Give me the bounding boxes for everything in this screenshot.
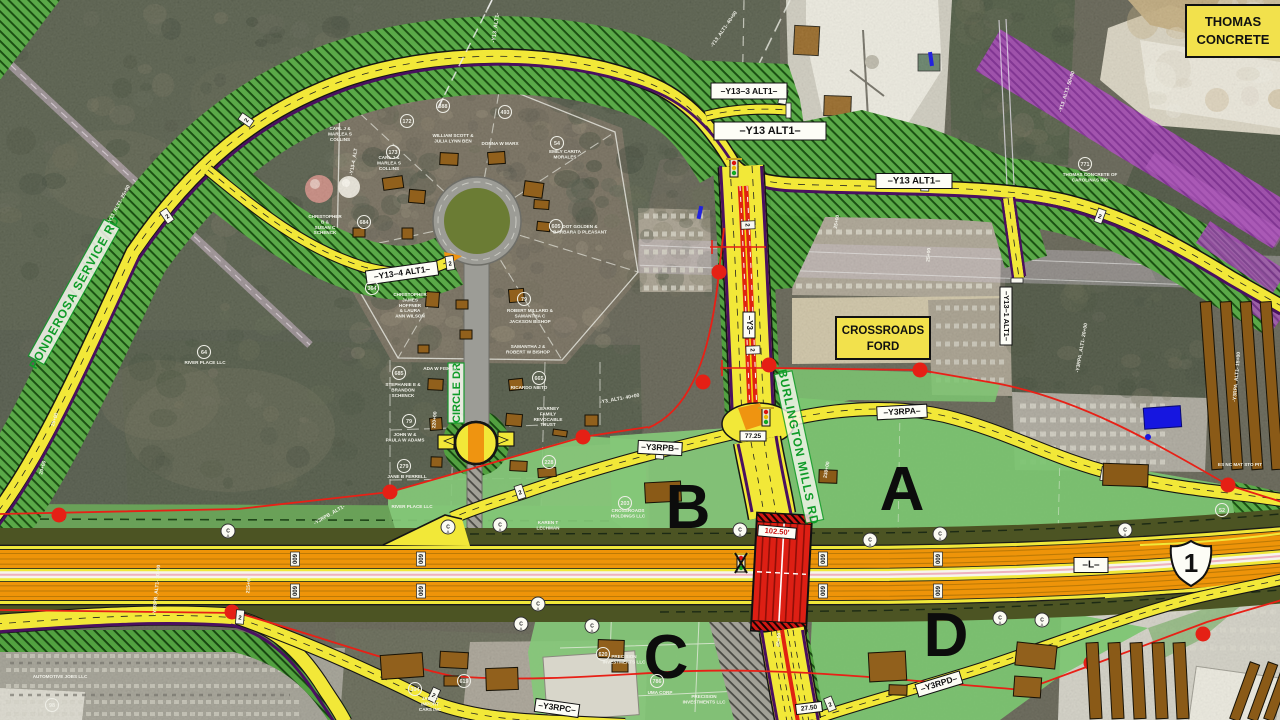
svg-text:TRUST: TRUST xyxy=(540,422,556,427)
svg-text:SAMANTHA C: SAMANTHA C xyxy=(515,313,546,318)
svg-text:STEPHANIE E &: STEPHANIE E & xyxy=(385,382,421,387)
svg-text:600: 600 xyxy=(819,554,825,565)
svg-text:IMPORT: IMPORT xyxy=(421,701,439,706)
svg-text:JAMBO: JAMBO xyxy=(422,696,439,701)
svg-text:RIVER PLACE LLC: RIVER PLACE LLC xyxy=(391,504,433,509)
svg-text:–Y3RPB–: –Y3RPB– xyxy=(641,441,680,453)
svg-text:CROSSROADS: CROSSROADS xyxy=(842,325,925,337)
svg-text:620: 620 xyxy=(599,652,608,658)
svg-text:FAMILY: FAMILY xyxy=(540,411,556,416)
svg-text:CHRISTOPHER: CHRISTOPHER xyxy=(308,214,342,219)
svg-text:JOHN W &: JOHN W & xyxy=(394,432,418,437)
svg-text:54: 54 xyxy=(554,141,560,147)
svg-text:B: B xyxy=(666,473,711,542)
svg-text:JAMES: JAMES xyxy=(402,297,418,302)
svg-text:ADA W FISHER: ADA W FISHER xyxy=(423,366,457,371)
svg-text:PRECISION: PRECISION xyxy=(611,654,637,659)
svg-text:77.25: 77.25 xyxy=(745,433,762,440)
svg-text:EMILY CARITA: EMILY CARITA xyxy=(549,149,582,154)
svg-text:A: A xyxy=(1124,532,1127,537)
svg-text:52: 52 xyxy=(1219,508,1225,514)
svg-text:MARLEA S: MARLEA S xyxy=(328,131,352,136)
svg-text:MARLEA S: MARLEA S xyxy=(377,160,401,165)
svg-text:KAREN T: KAREN T xyxy=(538,520,559,525)
svg-text:600: 600 xyxy=(417,586,423,597)
svg-text:A: A xyxy=(520,626,523,631)
svg-text:ES NC MAT STO PIT: ES NC MAT STO PIT xyxy=(1218,462,1262,467)
svg-text:A: A xyxy=(739,532,742,537)
svg-text:685: 685 xyxy=(395,371,404,377)
svg-text:COLLINS: COLLINS xyxy=(330,137,350,142)
svg-text:493: 493 xyxy=(501,110,510,116)
svg-text:CIRCLE DR: CIRCLE DR xyxy=(451,363,463,423)
svg-text:DONNA W MARX: DONNA W MARX xyxy=(481,141,519,146)
svg-text:228: 228 xyxy=(545,460,554,466)
svg-text:605: 605 xyxy=(552,224,561,230)
svg-text:LECHMAN: LECHMAN xyxy=(537,525,561,530)
svg-text:25+00: 25+00 xyxy=(925,247,932,262)
svg-text:786: 786 xyxy=(653,679,662,685)
svg-text:–Y3–: –Y3– xyxy=(745,316,754,335)
svg-text:CARS INC: CARS INC xyxy=(419,707,442,712)
svg-text:& LAURA: & LAURA xyxy=(400,308,421,313)
svg-text:79: 79 xyxy=(406,419,412,425)
svg-text:279: 279 xyxy=(400,464,409,470)
svg-text:A: A xyxy=(447,529,450,534)
svg-text:JACKSON BISHOP: JACKSON BISHOP xyxy=(509,319,550,324)
svg-text:SCHENCK: SCHENCK xyxy=(392,393,415,398)
svg-text:A: A xyxy=(499,527,502,532)
svg-text:HOLDINGS LLC: HOLDINGS LLC xyxy=(611,513,646,518)
svg-text:JULIA LYNN BEN: JULIA LYNN BEN xyxy=(434,138,472,143)
svg-text:600: 600 xyxy=(934,554,940,565)
svg-text:364: 364 xyxy=(368,286,377,292)
svg-text:64: 64 xyxy=(201,350,207,356)
svg-text:WILLIAM SCOTT &: WILLIAM SCOTT & xyxy=(432,133,474,138)
svg-text:–Y13–3 ALT1–: –Y13–3 ALT1– xyxy=(721,86,778,96)
svg-text:JANE B FERRELL: JANE B FERRELL xyxy=(387,474,426,479)
svg-text:A: A xyxy=(869,542,872,547)
svg-text:THOMAS: THOMAS xyxy=(1205,14,1262,29)
svg-text:HOFFNER: HOFFNER xyxy=(399,303,422,308)
svg-text:AUTOMOTIVE JOBS LLC: AUTOMOTIVE JOBS LLC xyxy=(33,674,88,679)
svg-text:–Y13 ALT1–: –Y13 ALT1– xyxy=(739,125,800,137)
svg-text:UMA CORP: UMA CORP xyxy=(648,690,673,695)
svg-text:REVOCABLE: REVOCABLE xyxy=(534,417,563,422)
svg-text:619: 619 xyxy=(460,679,469,685)
svg-text:A: A xyxy=(999,620,1002,625)
svg-text:CHRISTOPHER: CHRISTOPHER xyxy=(393,292,427,297)
svg-text:INVESTMENTS LLC: INVESTMENTS LLC xyxy=(683,699,727,704)
svg-text:CARL J &: CARL J & xyxy=(329,126,351,131)
svg-text:THOMAS CONCRETE OF: THOMAS CONCRETE OF xyxy=(1063,172,1118,177)
svg-text:SCHENCK: SCHENCK xyxy=(314,230,337,235)
svg-text:SUSAN C: SUSAN C xyxy=(315,225,336,230)
svg-text:600: 600 xyxy=(417,554,423,565)
svg-text:RICARDO NIETO: RICARDO NIETO xyxy=(511,385,548,390)
svg-text:COLLINS: COLLINS xyxy=(379,166,399,171)
svg-text:A: A xyxy=(591,628,594,633)
svg-text:A: A xyxy=(227,533,230,538)
svg-text:665: 665 xyxy=(535,376,544,382)
svg-text:PRECISION: PRECISION xyxy=(691,694,717,699)
svg-text:79: 79 xyxy=(521,297,527,303)
svg-text:MORALES: MORALES xyxy=(554,154,577,159)
svg-text:B &: B & xyxy=(321,219,330,224)
svg-text:771: 771 xyxy=(1081,162,1090,168)
svg-text:173: 173 xyxy=(389,150,398,156)
svg-text:SAMANTHA J &: SAMANTHA J & xyxy=(511,344,546,349)
svg-text:A: A xyxy=(880,455,925,524)
svg-text:CONCRETE: CONCRETE xyxy=(1197,32,1270,47)
svg-text:600: 600 xyxy=(819,586,825,597)
svg-text:–Y13–1 ALT1–: –Y13–1 ALT1– xyxy=(1002,291,1011,341)
svg-text:CAROLINAS INC: CAROLINAS INC xyxy=(1072,177,1109,182)
svg-text:ANN WILSON: ANN WILSON xyxy=(395,314,425,319)
svg-text:A: A xyxy=(1041,622,1044,627)
svg-text:PAULA W ADAMS: PAULA W ADAMS xyxy=(386,437,425,442)
svg-text:–L–: –L– xyxy=(1082,560,1100,571)
svg-text:ROBERT W BISHOP: ROBERT W BISHOP xyxy=(506,349,550,354)
svg-text:600: 600 xyxy=(934,586,940,597)
svg-text:BRANDON: BRANDON xyxy=(391,387,415,392)
svg-text:98: 98 xyxy=(49,703,55,709)
svg-text:A: A xyxy=(537,606,540,611)
svg-text:600: 600 xyxy=(291,586,297,597)
svg-text:ROBERT MILLARD &: ROBERT MILLARD & xyxy=(507,308,554,313)
svg-text:1: 1 xyxy=(1184,548,1198,578)
svg-text:600: 600 xyxy=(291,554,297,565)
svg-text:DOT GOLDEN &: DOT GOLDEN & xyxy=(562,224,598,229)
svg-text:40+00: 40+00 xyxy=(775,632,782,647)
svg-text:–Y13 ALT1–: –Y13 ALT1– xyxy=(888,176,941,187)
svg-text:–Y3RPA–: –Y3RPA– xyxy=(883,405,921,417)
svg-text:684: 684 xyxy=(360,220,369,226)
svg-text:FORD: FORD xyxy=(867,341,900,353)
svg-text:A: A xyxy=(939,536,942,541)
svg-text:D: D xyxy=(924,601,969,670)
svg-text:394: 394 xyxy=(411,687,420,693)
svg-text:KEARNEY: KEARNEY xyxy=(537,406,559,411)
svg-text:203: 203 xyxy=(621,501,630,507)
svg-text:INVESTMENTS LLC: INVESTMENTS LLC xyxy=(603,659,647,664)
svg-text:RIVER PLACE LLC: RIVER PLACE LLC xyxy=(184,360,226,365)
svg-text:172: 172 xyxy=(403,119,412,125)
